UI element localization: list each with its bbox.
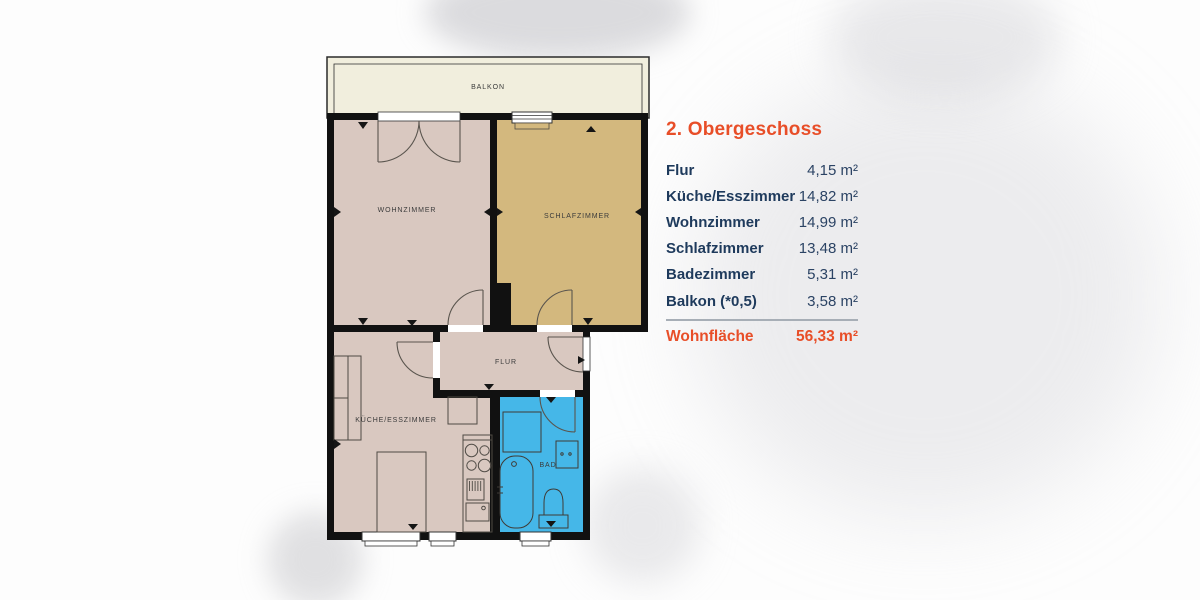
wohnzimmer-door-opening (448, 325, 483, 332)
room-name-label: Badezimmer (666, 266, 755, 283)
room-area-value: 14,99 m² (799, 214, 858, 231)
room-name-label: Flur (666, 162, 694, 179)
room-area-value: 5,31 m² (807, 266, 858, 283)
total-label: Wohnfläche (666, 328, 754, 346)
balkon-room-label: BALKON (471, 84, 505, 91)
kueche-window-2 (429, 532, 456, 546)
schlafzimmer-door-opening (537, 325, 572, 332)
legend-total-row: Wohnfläche 56,33 m² (666, 328, 858, 346)
bad-room-label: BAD (539, 462, 556, 469)
entrance-door-opening (583, 337, 590, 371)
page: BALKON WOHNZIMMER SCHLAFZIMMER FLUR KÜCH… (0, 0, 1200, 600)
legend-row: Wohnzimmer 14,99 m² (666, 209, 858, 235)
room-name-label: Schlafzimmer (666, 240, 764, 257)
schlafzimmer-room-area (497, 120, 641, 325)
bad-door-opening (540, 390, 575, 397)
balcony-door-opening (378, 112, 460, 121)
kueche-window-1 (362, 532, 420, 546)
room-name-label: Küche/Esszimmer (666, 188, 795, 205)
wall-pier (497, 283, 511, 332)
legend-divider (666, 319, 858, 321)
flur-room-label: FLUR (495, 359, 517, 366)
legend-row: Flur 4,15 m² (666, 157, 858, 183)
room-area-value: 3,58 m² (807, 293, 858, 310)
total-value: 56,33 m² (796, 328, 858, 346)
legend-row: Schlafzimmer 13,48 m² (666, 236, 858, 262)
room-area-value: 4,15 m² (807, 162, 858, 179)
legend-row: Badezimmer 5,31 m² (666, 262, 858, 288)
legend-row: Küche/Esszimmer 14,82 m² (666, 183, 858, 209)
schlafzimmer-room-label: SCHLAFZIMMER (544, 213, 610, 220)
kueche-door-opening (433, 342, 440, 378)
wohnzimmer-room-label: WOHNZIMMER (378, 207, 437, 214)
bad-window (520, 532, 551, 546)
room-area-value: 14,82 m² (799, 188, 858, 205)
room-name-label: Balkon (*0,5) (666, 293, 757, 310)
area-legend: 2. Obergeschoss Flur 4,15 m² Küche/Esszi… (666, 119, 858, 346)
schlafzimmer-balcony-window (512, 112, 552, 129)
floor-plan: BALKON WOHNZIMMER SCHLAFZIMMER FLUR KÜCH… (0, 0, 1200, 600)
legend-row: Balkon (*0,5) 3,58 m² (666, 288, 858, 314)
room-name-label: Wohnzimmer (666, 214, 760, 231)
kueche-room-label: KÜCHE/ESSZIMMER (355, 416, 437, 424)
legend-title: 2. Obergeschoss (666, 119, 858, 141)
room-area-value: 13,48 m² (799, 240, 858, 257)
